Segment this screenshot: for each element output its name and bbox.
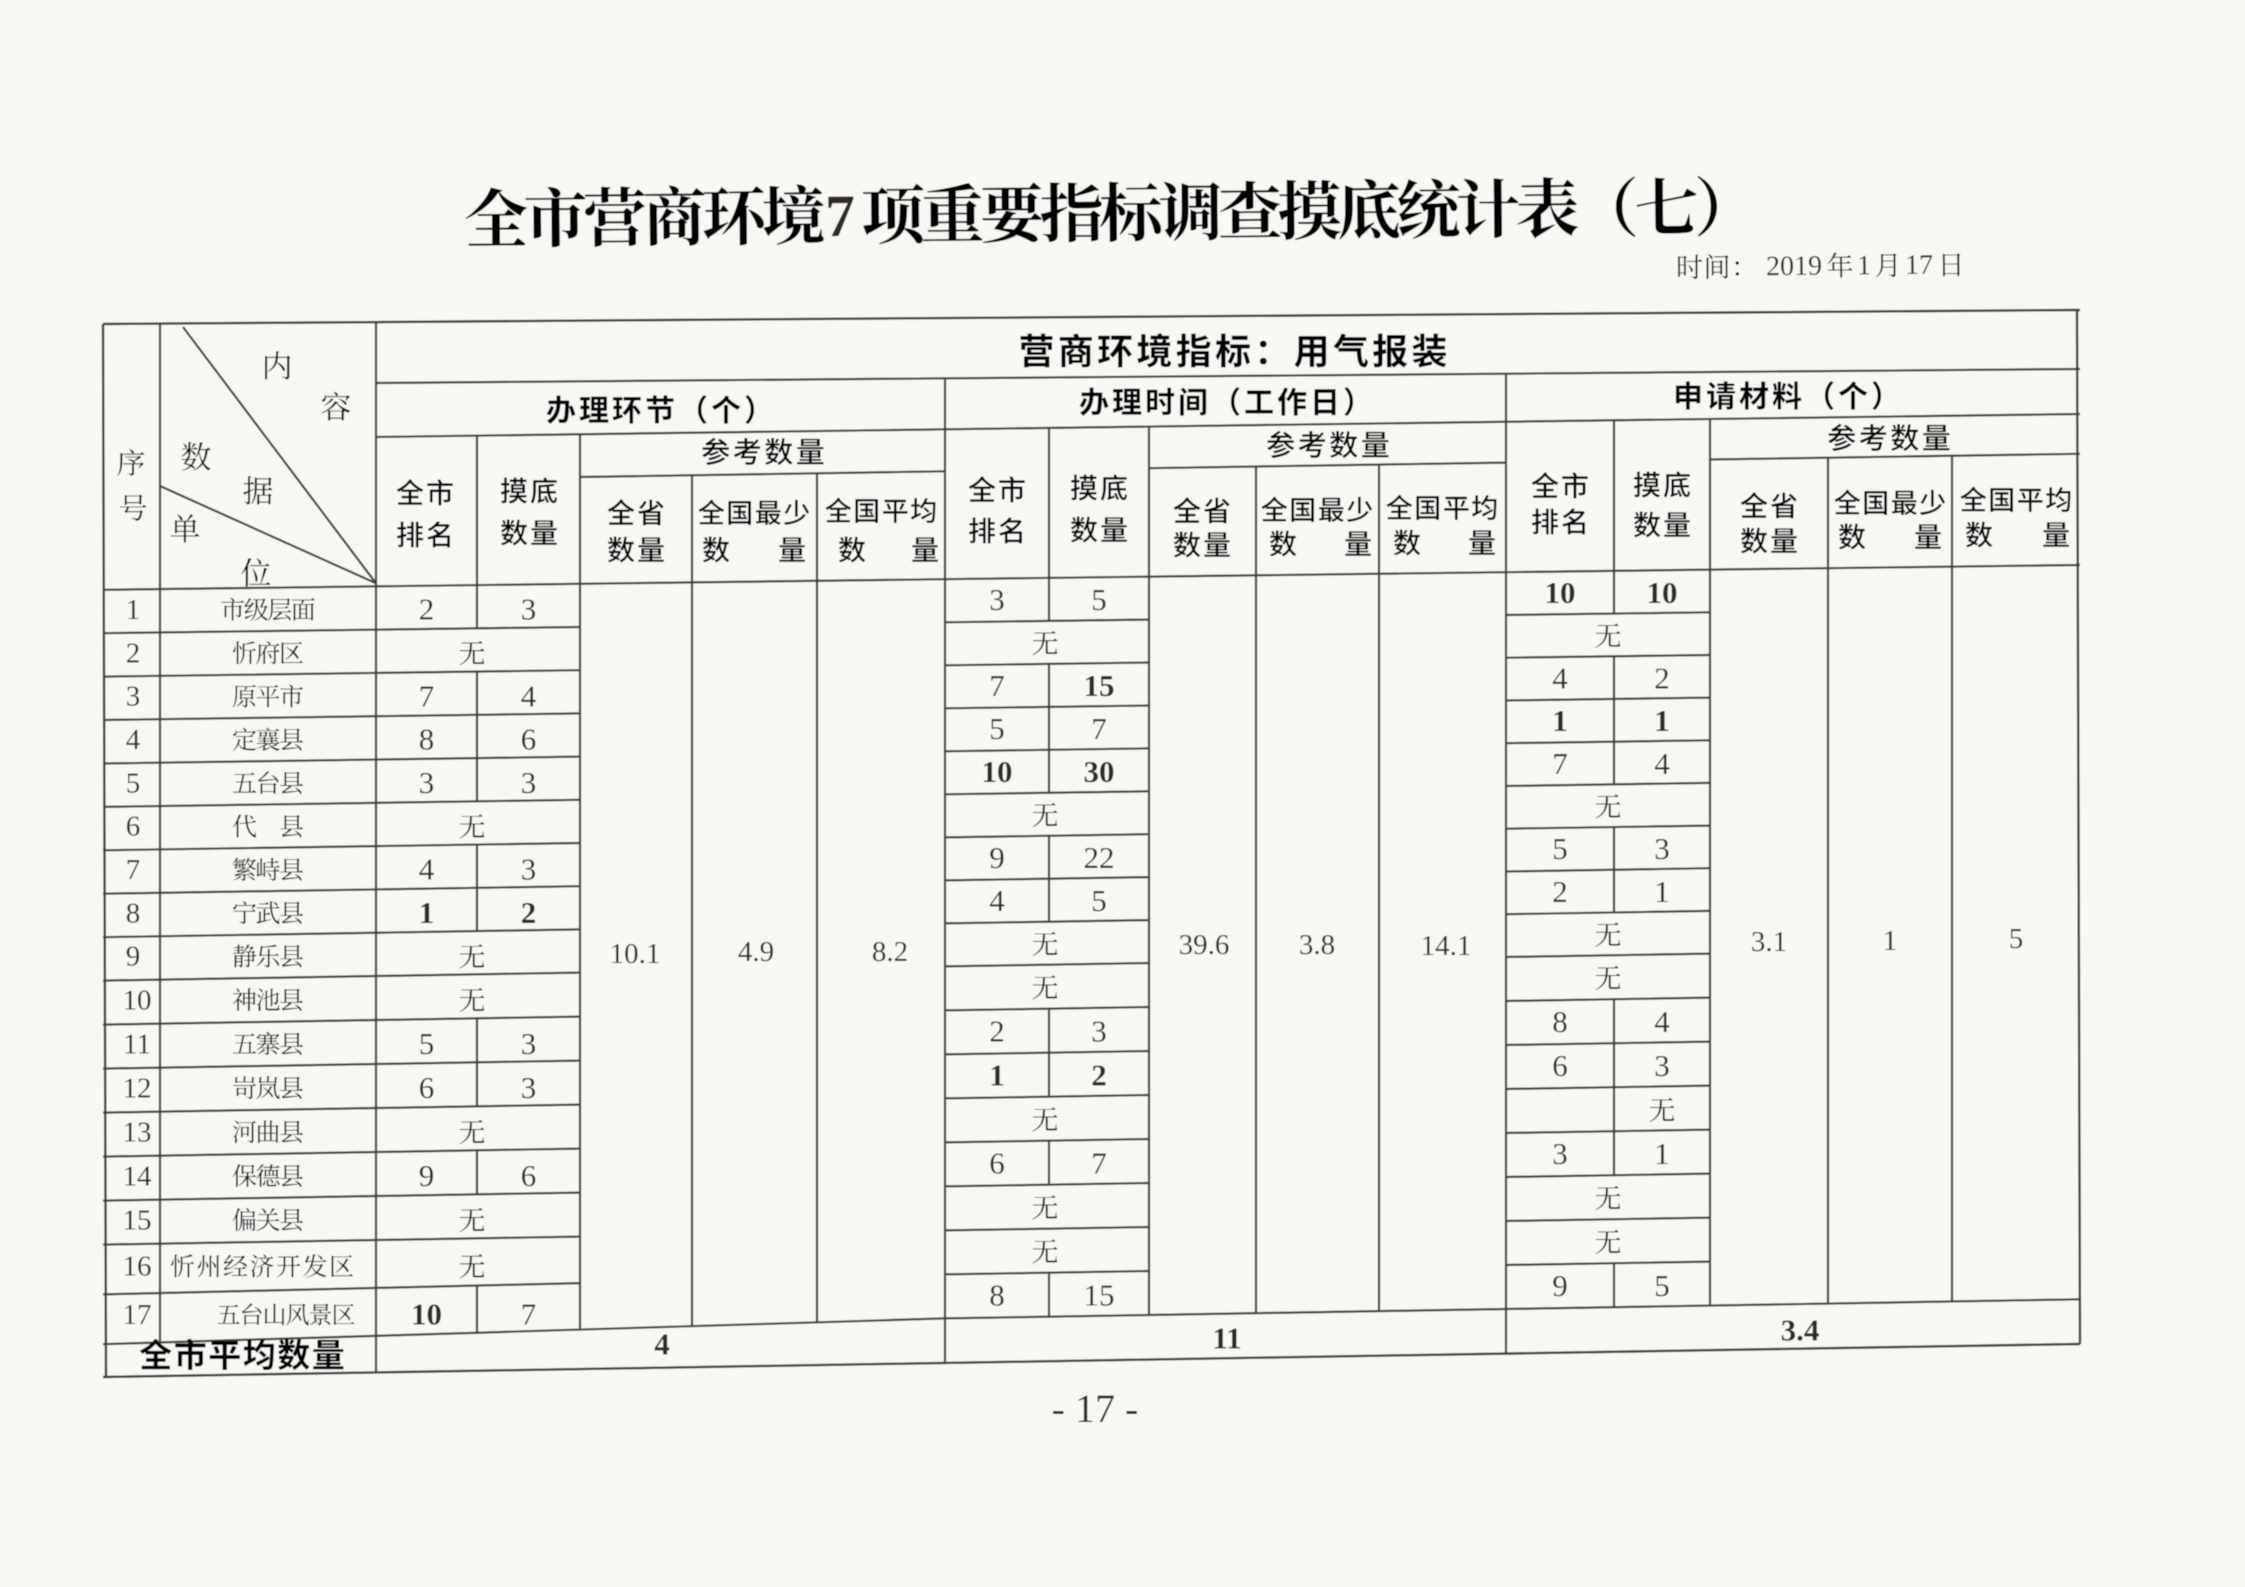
svg-text:5: 5 — [126, 767, 141, 799]
svg-text:9: 9 — [419, 1158, 435, 1193]
svg-text:6: 6 — [989, 1145, 1005, 1180]
svg-text:17: 17 — [123, 1299, 152, 1331]
svg-text:5: 5 — [1552, 831, 1568, 866]
svg-text:1: 1 — [1552, 703, 1568, 738]
svg-text:- 17 -: - 17 - — [1052, 1386, 1139, 1431]
svg-text:1: 1 — [1883, 925, 1898, 957]
svg-text:7: 7 — [419, 678, 435, 713]
svg-text:10: 10 — [411, 1297, 442, 1332]
svg-text:5: 5 — [1091, 883, 1107, 918]
svg-text:4: 4 — [989, 883, 1005, 918]
svg-text:3.8: 3.8 — [1299, 929, 1335, 961]
svg-text:6: 6 — [126, 811, 141, 843]
svg-text:2019: 2019 — [1766, 251, 1822, 283]
svg-text:7: 7 — [1091, 1145, 1107, 1180]
svg-text:3: 3 — [989, 582, 1005, 617]
svg-text:4: 4 — [419, 852, 435, 887]
svg-text:7: 7 — [1552, 746, 1568, 781]
svg-text:4: 4 — [1654, 1004, 1670, 1039]
svg-text:22: 22 — [1084, 840, 1115, 875]
svg-text:7: 7 — [989, 668, 1005, 703]
svg-text:4: 4 — [654, 1327, 670, 1362]
svg-text:3: 3 — [1552, 1136, 1568, 1171]
svg-text:1: 1 — [126, 594, 141, 626]
svg-text:9: 9 — [126, 941, 141, 973]
svg-text:2: 2 — [989, 1013, 1005, 1048]
svg-text:8: 8 — [989, 1277, 1005, 1312]
svg-text:9: 9 — [989, 840, 1005, 875]
svg-text:10: 10 — [123, 984, 152, 1016]
svg-text:2: 2 — [1091, 1057, 1107, 1092]
svg-text:8.2: 8.2 — [872, 936, 908, 968]
svg-text:10: 10 — [1647, 575, 1678, 610]
svg-text:8: 8 — [126, 897, 141, 929]
svg-text:2: 2 — [1552, 874, 1568, 909]
svg-text:3: 3 — [1654, 831, 1670, 866]
svg-text:11: 11 — [1212, 1321, 1241, 1356]
svg-text:6: 6 — [1552, 1048, 1568, 1083]
svg-text:4.9: 4.9 — [738, 936, 774, 968]
svg-text:2: 2 — [126, 637, 141, 669]
svg-text:30: 30 — [1084, 754, 1115, 789]
svg-text:14.1: 14.1 — [1421, 930, 1472, 962]
svg-text:2: 2 — [1654, 660, 1670, 695]
svg-text:8: 8 — [419, 722, 435, 757]
svg-text:2: 2 — [419, 592, 435, 627]
svg-text:4: 4 — [521, 678, 537, 713]
svg-text:1: 1 — [1857, 250, 1871, 281]
svg-text:5: 5 — [1091, 582, 1107, 617]
svg-text:3: 3 — [1654, 1048, 1670, 1083]
svg-text:3: 3 — [521, 1070, 537, 1105]
svg-text:10: 10 — [982, 754, 1013, 789]
svg-text:6: 6 — [521, 1158, 537, 1193]
svg-text:10.1: 10.1 — [610, 938, 661, 970]
svg-text:3: 3 — [521, 765, 537, 800]
svg-text:15: 15 — [1084, 1277, 1115, 1312]
svg-text:7: 7 — [1091, 711, 1107, 746]
svg-text:6: 6 — [521, 722, 537, 757]
svg-text:3: 3 — [521, 852, 537, 887]
svg-text:39.6: 39.6 — [1179, 929, 1230, 961]
svg-text:1: 1 — [989, 1057, 1005, 1092]
svg-text:12: 12 — [123, 1072, 152, 1104]
svg-text:8: 8 — [1552, 1004, 1568, 1039]
svg-text:17: 17 — [1905, 250, 1933, 281]
svg-text:6: 6 — [419, 1070, 435, 1105]
svg-text:4: 4 — [126, 724, 141, 756]
svg-text:3: 3 — [521, 1026, 537, 1061]
svg-text:5: 5 — [1654, 1268, 1670, 1303]
svg-text:15: 15 — [1084, 668, 1115, 703]
svg-text:13: 13 — [123, 1116, 152, 1148]
svg-text:3: 3 — [126, 681, 141, 713]
svg-text:3: 3 — [521, 592, 537, 627]
svg-text:16: 16 — [123, 1251, 152, 1283]
svg-text:3.1: 3.1 — [1751, 926, 1787, 958]
svg-text:2: 2 — [521, 895, 537, 930]
svg-text:10: 10 — [1545, 575, 1576, 610]
svg-text:7: 7 — [521, 1297, 537, 1332]
svg-text:7: 7 — [825, 183, 856, 249]
svg-text:4: 4 — [1654, 746, 1670, 781]
svg-text:11: 11 — [123, 1028, 151, 1060]
svg-text:3.4: 3.4 — [1781, 1313, 1820, 1348]
svg-text:5: 5 — [989, 711, 1005, 746]
svg-text:1: 1 — [1654, 703, 1670, 738]
svg-text:14: 14 — [123, 1160, 153, 1192]
svg-text:15: 15 — [123, 1204, 152, 1236]
svg-text:1: 1 — [1654, 874, 1670, 909]
svg-text:3: 3 — [419, 765, 435, 800]
svg-text:7: 7 — [126, 854, 141, 886]
svg-text:4: 4 — [1552, 660, 1568, 695]
svg-text:1: 1 — [419, 895, 435, 930]
svg-text:9: 9 — [1552, 1268, 1568, 1303]
svg-text:5: 5 — [419, 1026, 435, 1061]
svg-text:3: 3 — [1091, 1013, 1107, 1048]
svg-text:1: 1 — [1654, 1136, 1670, 1171]
svg-text:5: 5 — [2009, 923, 2024, 955]
